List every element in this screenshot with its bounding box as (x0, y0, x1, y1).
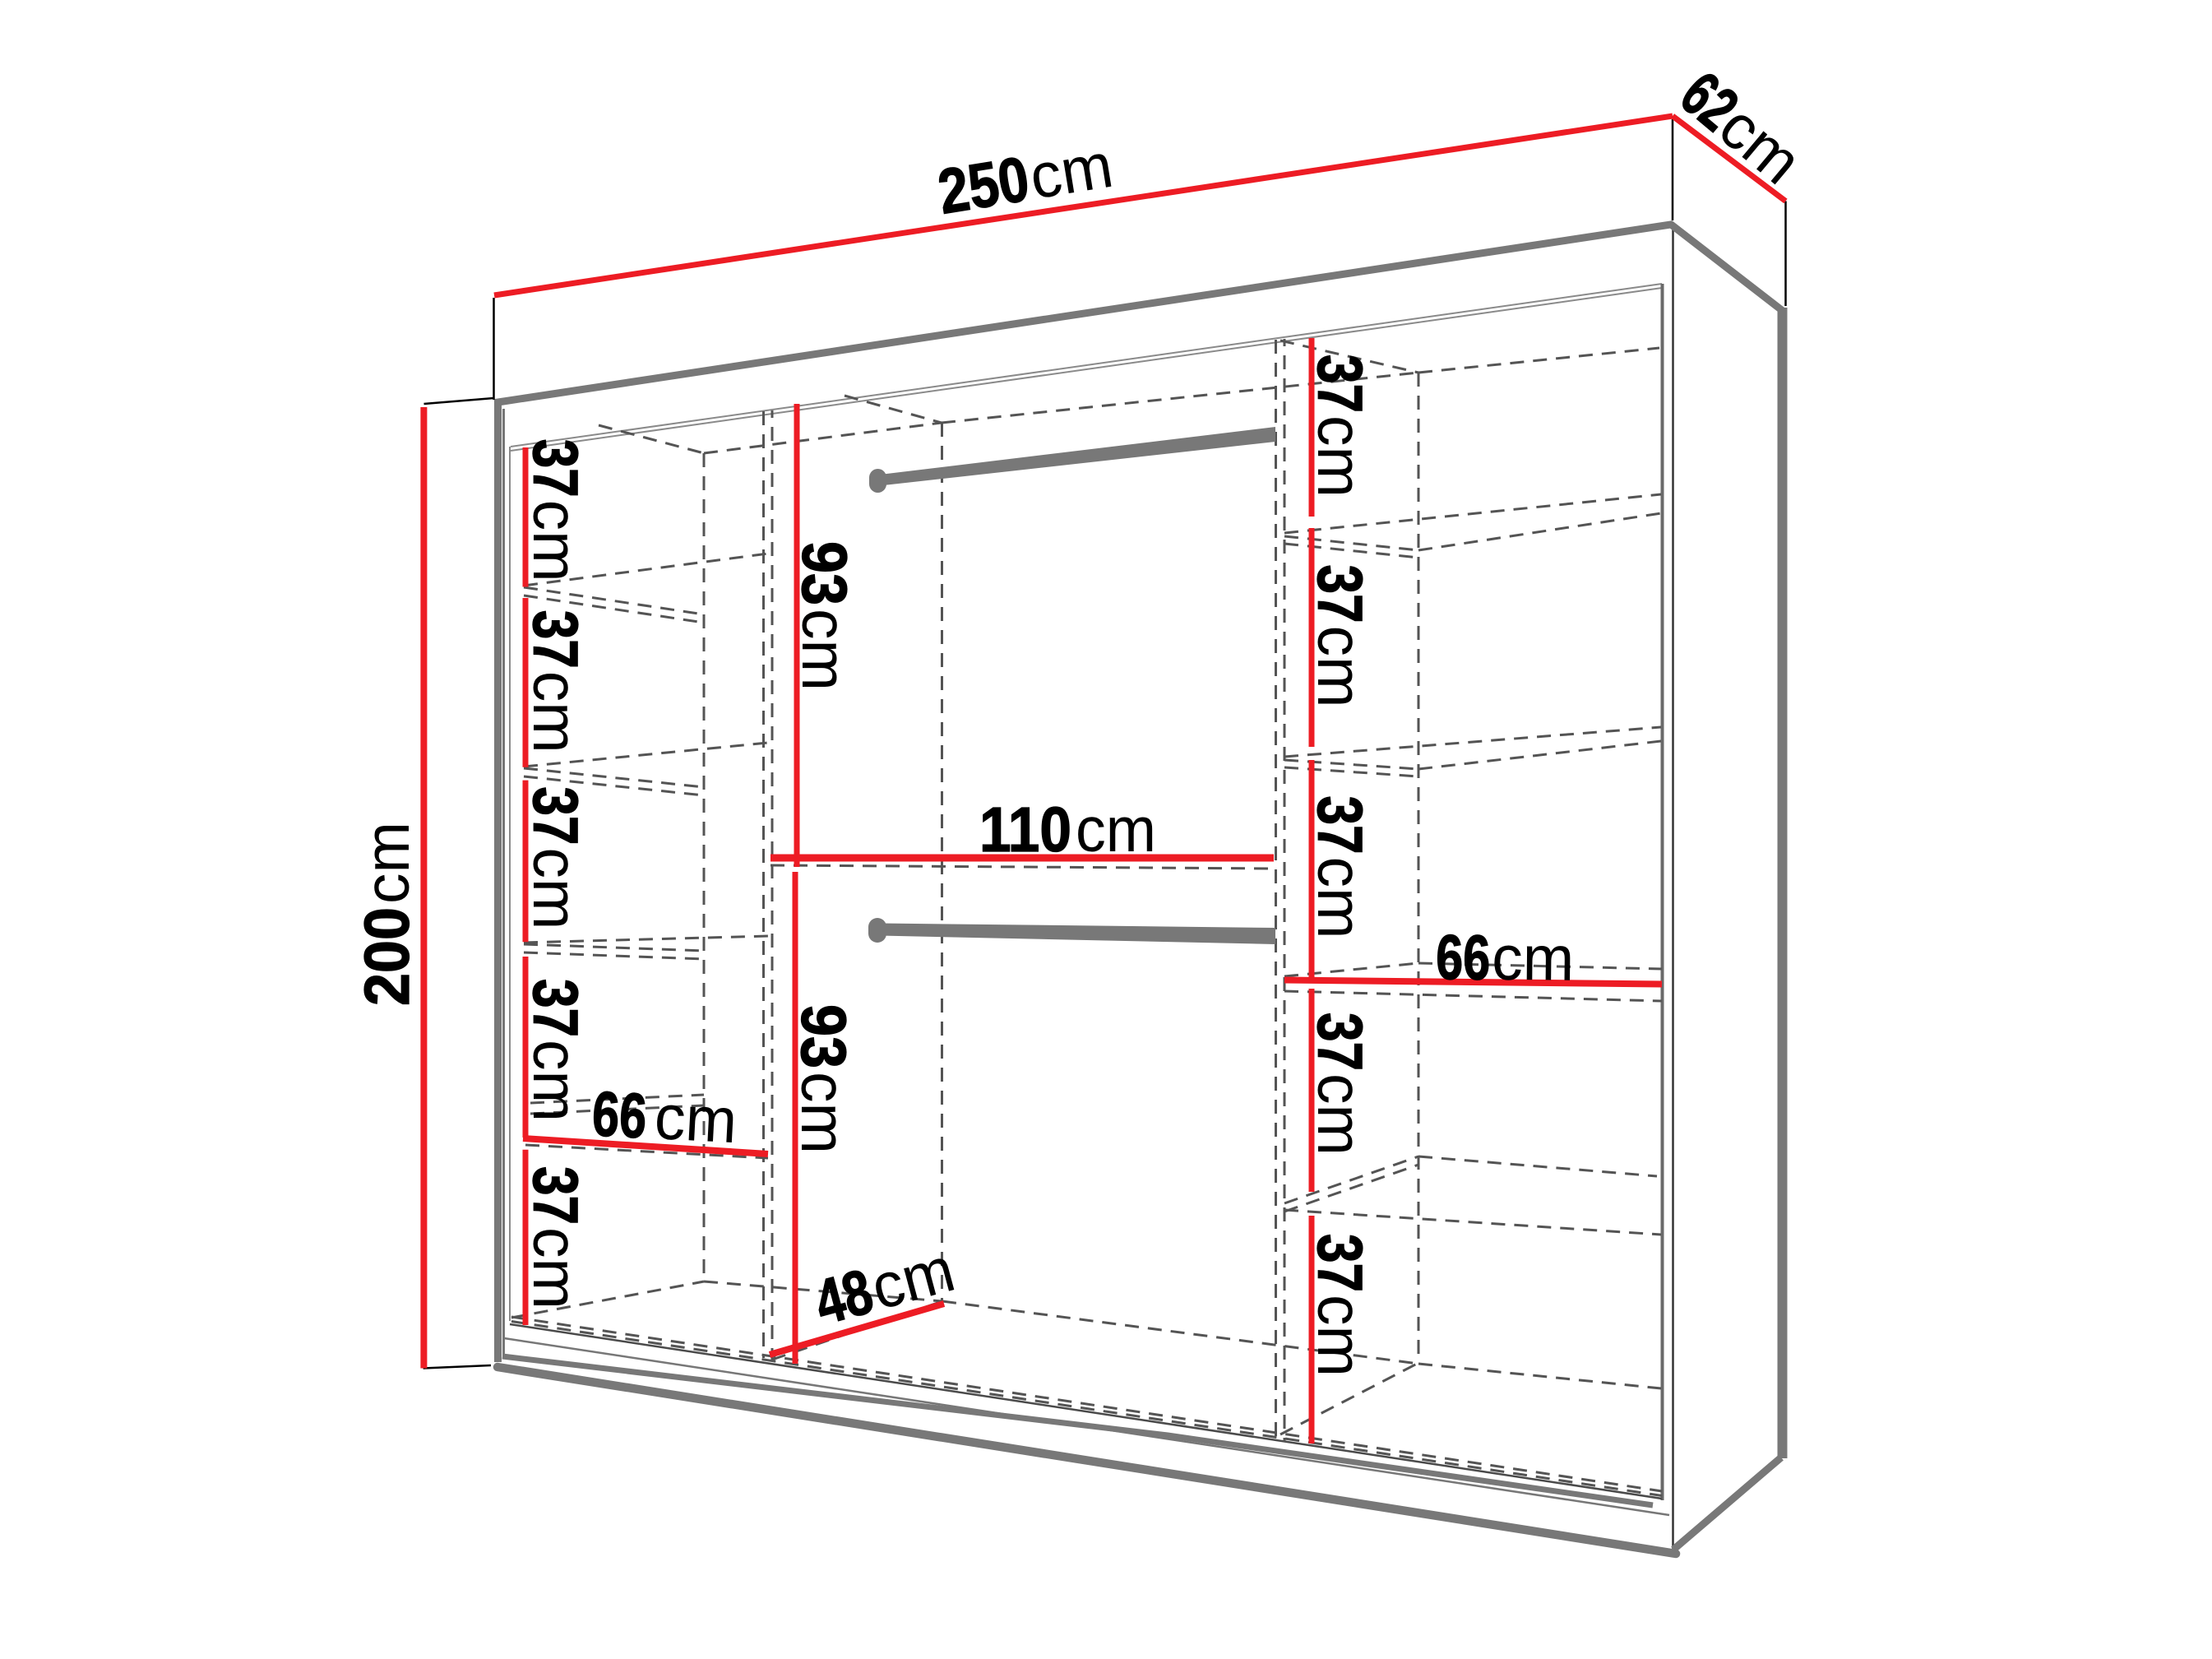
svg-text:cm: cm (1304, 857, 1375, 939)
svg-text:cm: cm (520, 847, 590, 929)
svg-text:cm: cm (520, 500, 590, 582)
svg-text:cm: cm (1076, 795, 1156, 865)
svg-text:66: 66 (590, 1078, 648, 1152)
svg-text:37: 37 (520, 786, 590, 845)
svg-text:cm: cm (1025, 130, 1118, 213)
svg-text:cm: cm (653, 1082, 738, 1156)
svg-text:cm: cm (789, 609, 859, 691)
svg-text:cm: cm (788, 1072, 858, 1154)
svg-text:37: 37 (520, 610, 590, 669)
svg-text:37: 37 (1304, 796, 1375, 855)
svg-text:37: 37 (1304, 565, 1375, 623)
svg-text:200: 200 (352, 907, 423, 1006)
svg-text:cm: cm (520, 1040, 590, 1122)
svg-text:37: 37 (1304, 1013, 1375, 1071)
svg-text:37: 37 (520, 439, 590, 498)
svg-text:37: 37 (1304, 355, 1375, 413)
svg-text:37: 37 (1304, 1234, 1375, 1292)
svg-text:cm: cm (352, 822, 423, 904)
svg-text:cm: cm (520, 1227, 590, 1309)
svg-text:93: 93 (789, 541, 859, 605)
svg-text:cm: cm (1304, 1073, 1375, 1156)
svg-text:250: 250 (933, 143, 1034, 227)
svg-text:110: 110 (979, 795, 1071, 865)
svg-text:cm: cm (1304, 626, 1375, 708)
svg-text:cm: cm (1492, 923, 1575, 994)
svg-text:cm: cm (1304, 1295, 1375, 1377)
svg-text:cm: cm (1304, 415, 1375, 498)
svg-text:37: 37 (520, 1166, 590, 1225)
svg-text:37: 37 (520, 979, 590, 1037)
svg-text:93: 93 (788, 1004, 858, 1068)
svg-text:cm: cm (520, 671, 590, 753)
svg-text:66: 66 (1436, 922, 1491, 994)
